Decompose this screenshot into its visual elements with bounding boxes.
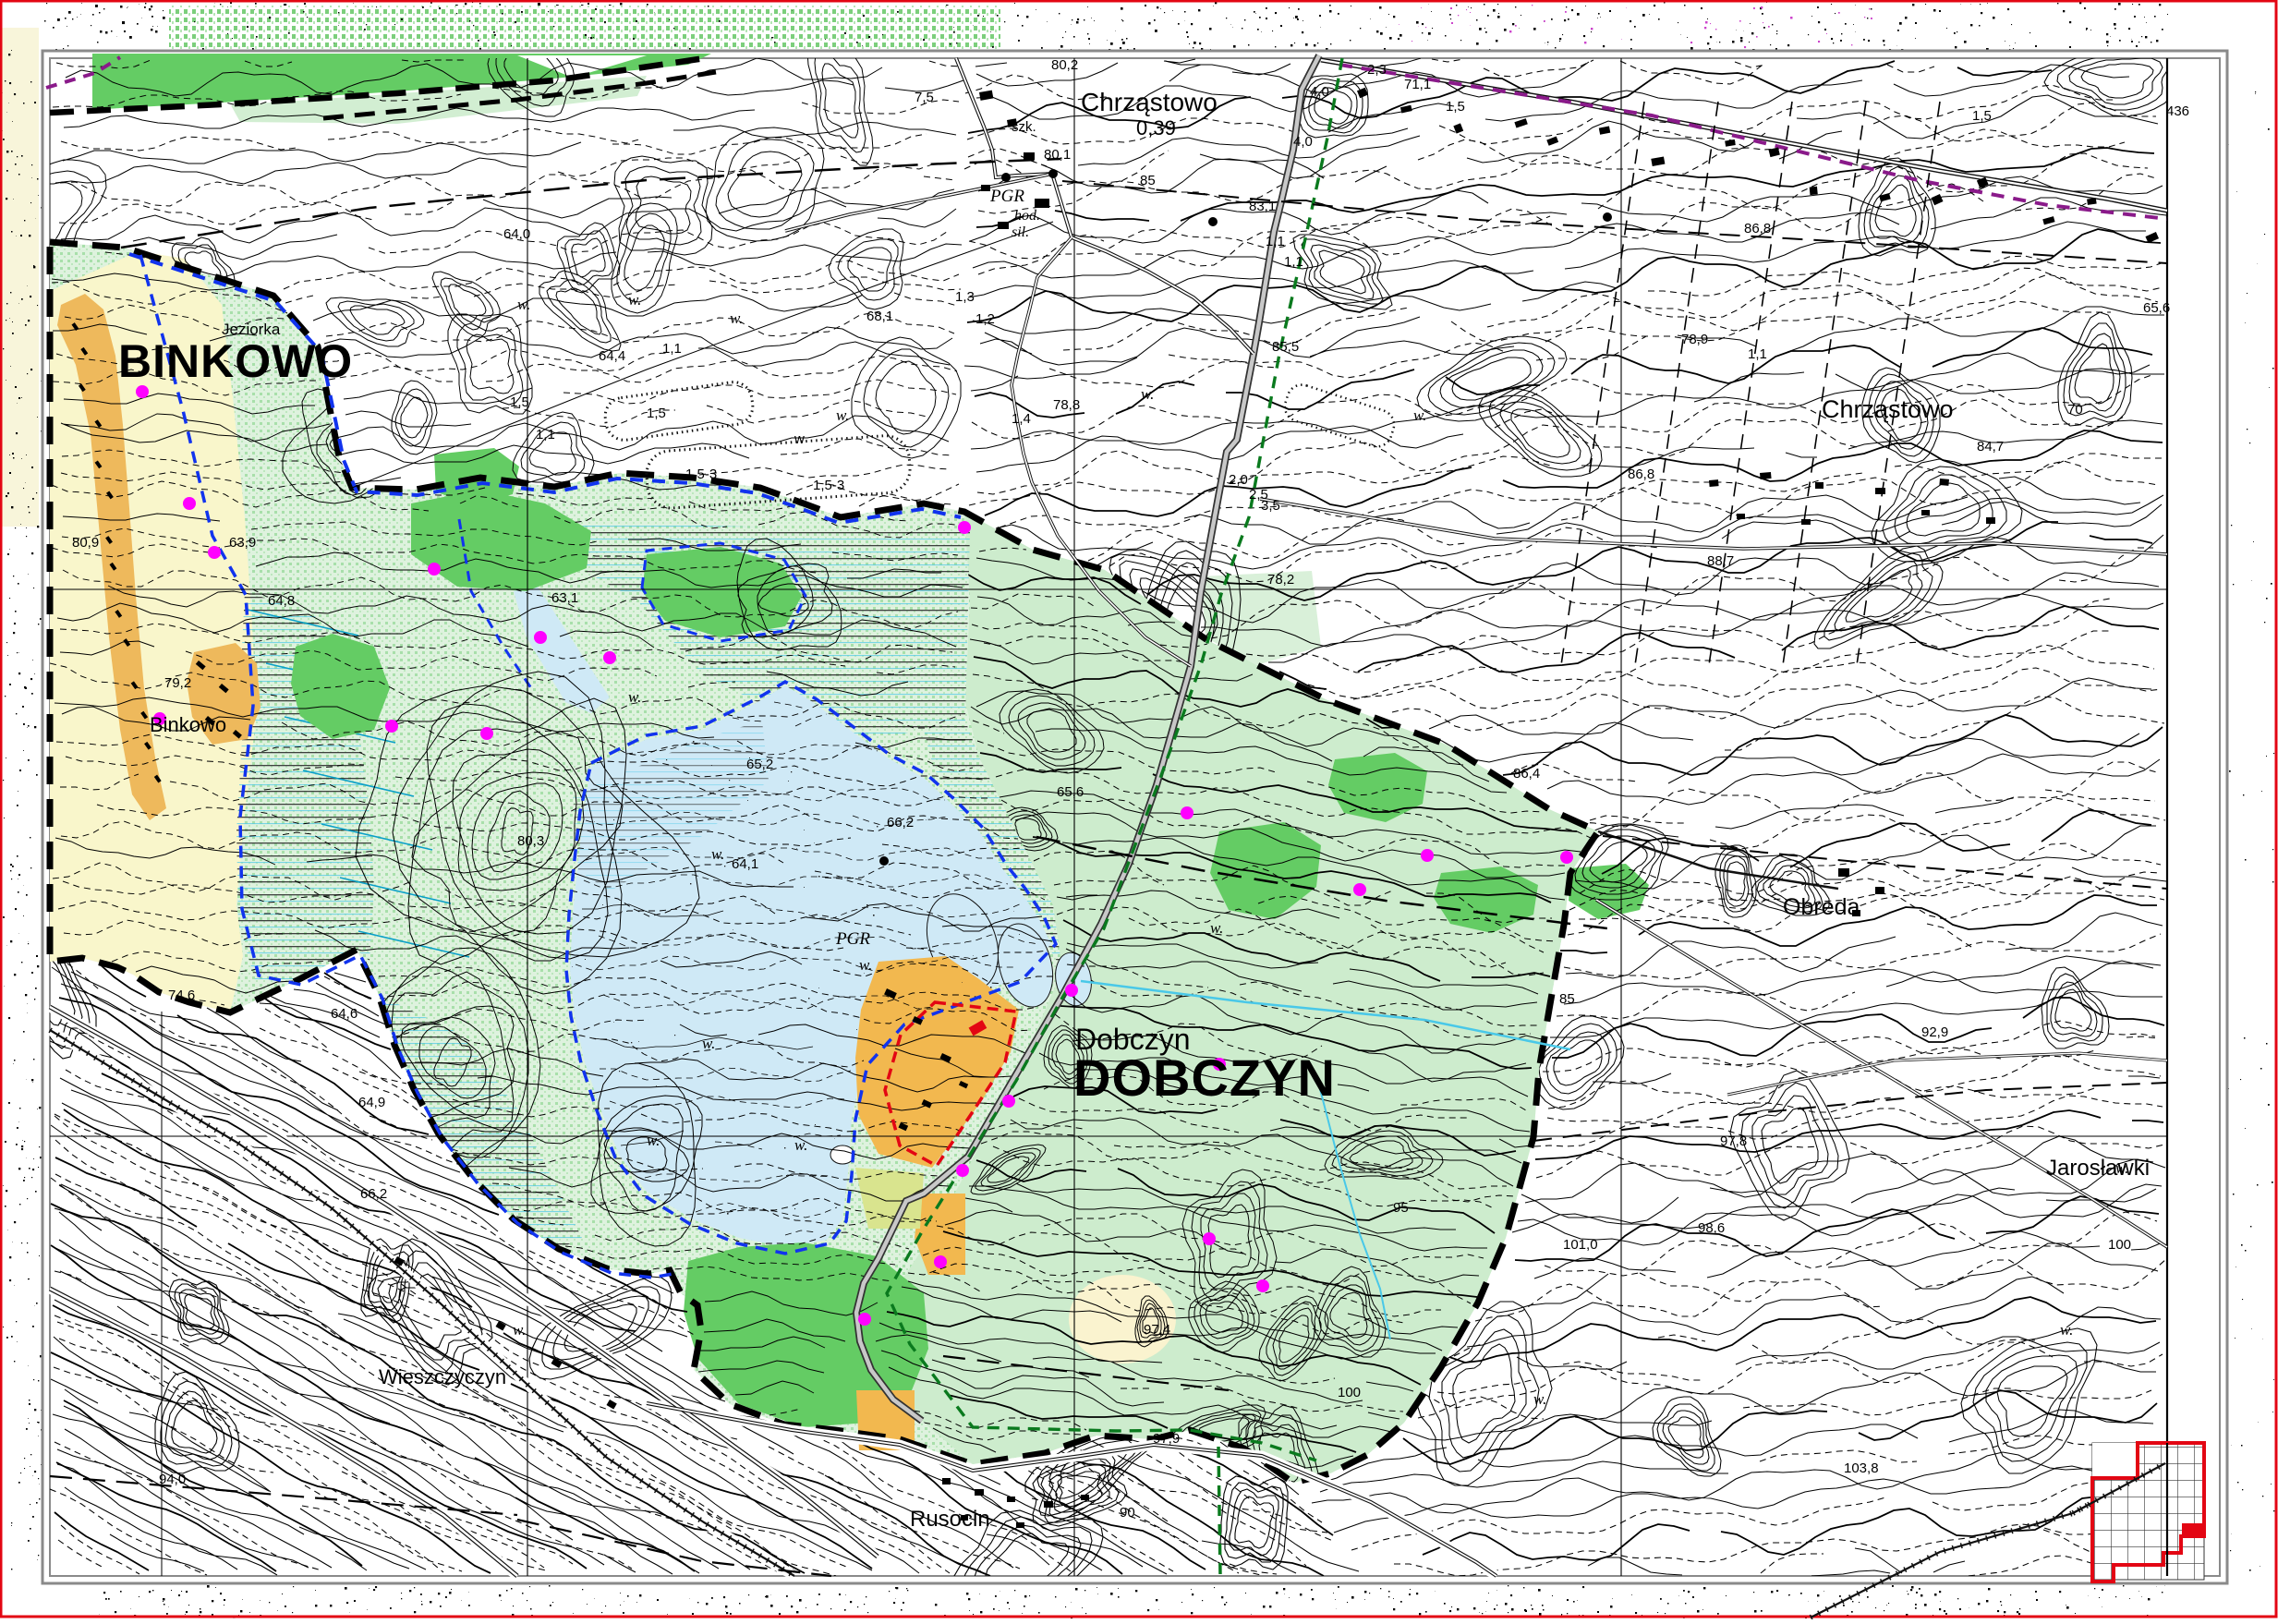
- svg-text:71,1: 71,1: [1404, 77, 1431, 92]
- svg-text:w.: w.: [1533, 1390, 1546, 1408]
- svg-text:w.: w.: [1210, 919, 1223, 937]
- svg-text:95: 95: [1393, 1200, 1409, 1216]
- svg-text:w.: w.: [1141, 385, 1154, 403]
- svg-text:Jeziorka: Jeziorka: [222, 321, 281, 338]
- svg-text:97,4: 97,4: [1144, 1322, 1170, 1338]
- svg-text:101,0: 101,0: [1563, 1237, 1598, 1253]
- svg-text:65,6: 65,6: [2143, 300, 2170, 316]
- svg-text:Chrząstowo: Chrząstowo: [1822, 395, 1954, 423]
- svg-text:83,1: 83,1: [1249, 199, 1276, 214]
- svg-text:86,8: 86,8: [1628, 467, 1654, 482]
- svg-text:1,1: 1,1: [536, 427, 555, 442]
- svg-text:85: 85: [1559, 991, 1575, 1007]
- svg-text:1,5: 1,5: [647, 406, 666, 421]
- svg-text:w.: w.: [836, 406, 849, 424]
- svg-text:1,1: 1,1: [1266, 234, 1285, 249]
- svg-text:64,9: 64,9: [358, 1095, 385, 1110]
- svg-text:85: 85: [1140, 173, 1156, 188]
- svg-text:97,8: 97,8: [1720, 1133, 1747, 1149]
- svg-text:65,2: 65,2: [746, 757, 773, 772]
- svg-text:1,1: 1,1: [662, 341, 682, 357]
- svg-text:w.: w.: [647, 1132, 660, 1149]
- svg-text:100: 100: [1338, 1385, 1361, 1400]
- svg-text:w.: w.: [794, 1136, 807, 1154]
- svg-text:w: w: [794, 431, 805, 447]
- svg-text:w.: w.: [702, 1035, 715, 1052]
- svg-text:78,8: 78,8: [1053, 397, 1080, 413]
- svg-text:86,8: 86,8: [1744, 221, 1771, 236]
- svg-text:78,2: 78,2: [1267, 572, 1294, 588]
- svg-text:97,9: 97,9: [1153, 1431, 1180, 1447]
- svg-text:103,8: 103,8: [1844, 1460, 1879, 1476]
- svg-text:PGR: PGR: [835, 929, 870, 949]
- svg-text:2,3: 2,3: [1367, 62, 1387, 78]
- svg-text:65,6: 65,6: [1057, 784, 1084, 800]
- svg-text:68,1: 68,1: [866, 309, 893, 324]
- svg-text:4,0: 4,0: [1293, 134, 1313, 150]
- svg-text:64,6: 64,6: [331, 1006, 357, 1022]
- svg-text:66,2: 66,2: [360, 1186, 387, 1202]
- svg-text:88,7: 88,7: [1707, 553, 1734, 569]
- svg-text:78,9: 78,9: [1681, 332, 1708, 347]
- svg-text:w.: w.: [1413, 406, 1426, 424]
- svg-text:w.: w.: [2115, 1159, 2128, 1177]
- svg-text:DOBCZYN: DOBCZYN: [1073, 1048, 1336, 1107]
- svg-text:w.: w.: [730, 309, 743, 327]
- svg-text:1,5: 1,5: [510, 394, 529, 410]
- svg-text:1,1: 1,1: [1284, 254, 1303, 270]
- svg-text:w.: w.: [513, 1321, 526, 1339]
- svg-text:2,0: 2,0: [1229, 472, 1248, 488]
- svg-text:85,5: 85,5: [1272, 339, 1299, 355]
- svg-text:w.: w.: [711, 845, 724, 863]
- svg-text:84,7: 84,7: [1977, 439, 2004, 454]
- svg-text:1,2: 1,2: [975, 311, 995, 327]
- svg-text:66,2: 66,2: [887, 815, 914, 830]
- svg-text:436: 436: [2166, 103, 2189, 119]
- svg-text:92,9: 92,9: [1921, 1024, 1948, 1040]
- svg-text:64,8: 64,8: [268, 593, 295, 609]
- svg-text:63,1: 63,1: [551, 590, 578, 606]
- svg-text:98,6: 98,6: [1698, 1220, 1725, 1236]
- svg-text:sil.: sil.: [1012, 224, 1029, 240]
- svg-text:3,5: 3,5: [1261, 498, 1280, 514]
- svg-text:1,4: 1,4: [1012, 411, 1031, 427]
- svg-text:hod.: hod.: [1014, 208, 1040, 224]
- svg-text:Rusocin: Rusocin: [910, 1507, 990, 1532]
- svg-text:7,5: 7,5: [915, 90, 934, 105]
- svg-text:94,0: 94,0: [159, 1472, 186, 1487]
- svg-text:64,4: 64,4: [599, 348, 625, 364]
- svg-text:Chrząstowo: Chrząstowo: [1081, 88, 1218, 116]
- svg-text:w.: w.: [517, 296, 530, 313]
- svg-text:80,2: 80,2: [1051, 57, 1078, 73]
- svg-text:74,6: 74,6: [168, 988, 195, 1003]
- svg-text:4,0: 4,0: [1310, 84, 1329, 100]
- svg-text:1,1: 1,1: [1748, 346, 1767, 362]
- svg-text:70: 70: [2067, 402, 2083, 418]
- svg-text:PGR: PGR: [989, 187, 1024, 206]
- svg-text:1,3: 1,3: [955, 289, 975, 305]
- svg-text:63,9: 63,9: [229, 535, 256, 551]
- svg-text:80,1: 80,1: [1044, 147, 1071, 163]
- svg-text:1,5-3: 1,5-3: [813, 478, 844, 493]
- svg-text:100: 100: [2108, 1237, 2131, 1253]
- svg-text:BINKOWO: BINKOWO: [118, 335, 353, 387]
- svg-text:1,5: 1,5: [1446, 99, 1465, 115]
- svg-text:Dobczyn: Dobczyn: [1075, 1023, 1191, 1056]
- svg-text:1,5: 1,5: [1972, 108, 1992, 124]
- svg-text:80,9: 80,9: [72, 535, 99, 551]
- svg-text:w.: w.: [859, 956, 872, 974]
- svg-text:Jarosławki: Jarosławki: [2046, 1156, 2150, 1181]
- svg-text:90: 90: [1120, 1505, 1135, 1521]
- svg-text:Obreda: Obreda: [1783, 894, 1860, 920]
- svg-text:80,3: 80,3: [517, 833, 544, 849]
- svg-text:64,0: 64,0: [503, 226, 530, 242]
- svg-text:Binkowo: Binkowo: [150, 713, 226, 736]
- svg-text:64,1: 64,1: [732, 856, 758, 872]
- svg-text:86,4: 86,4: [1513, 766, 1540, 782]
- svg-text:Wieszczyczyn: Wieszczyczyn: [379, 1365, 506, 1388]
- svg-text:szk.: szk.: [1012, 119, 1036, 135]
- svg-text:79,2: 79,2: [164, 675, 191, 691]
- svg-text:0,39: 0,39: [1136, 116, 1176, 139]
- svg-text:w.: w.: [628, 291, 641, 309]
- svg-text:w.: w.: [628, 688, 641, 706]
- svg-text:1,5-3: 1,5-3: [685, 467, 717, 482]
- svg-text:w.: w.: [2060, 1321, 2073, 1339]
